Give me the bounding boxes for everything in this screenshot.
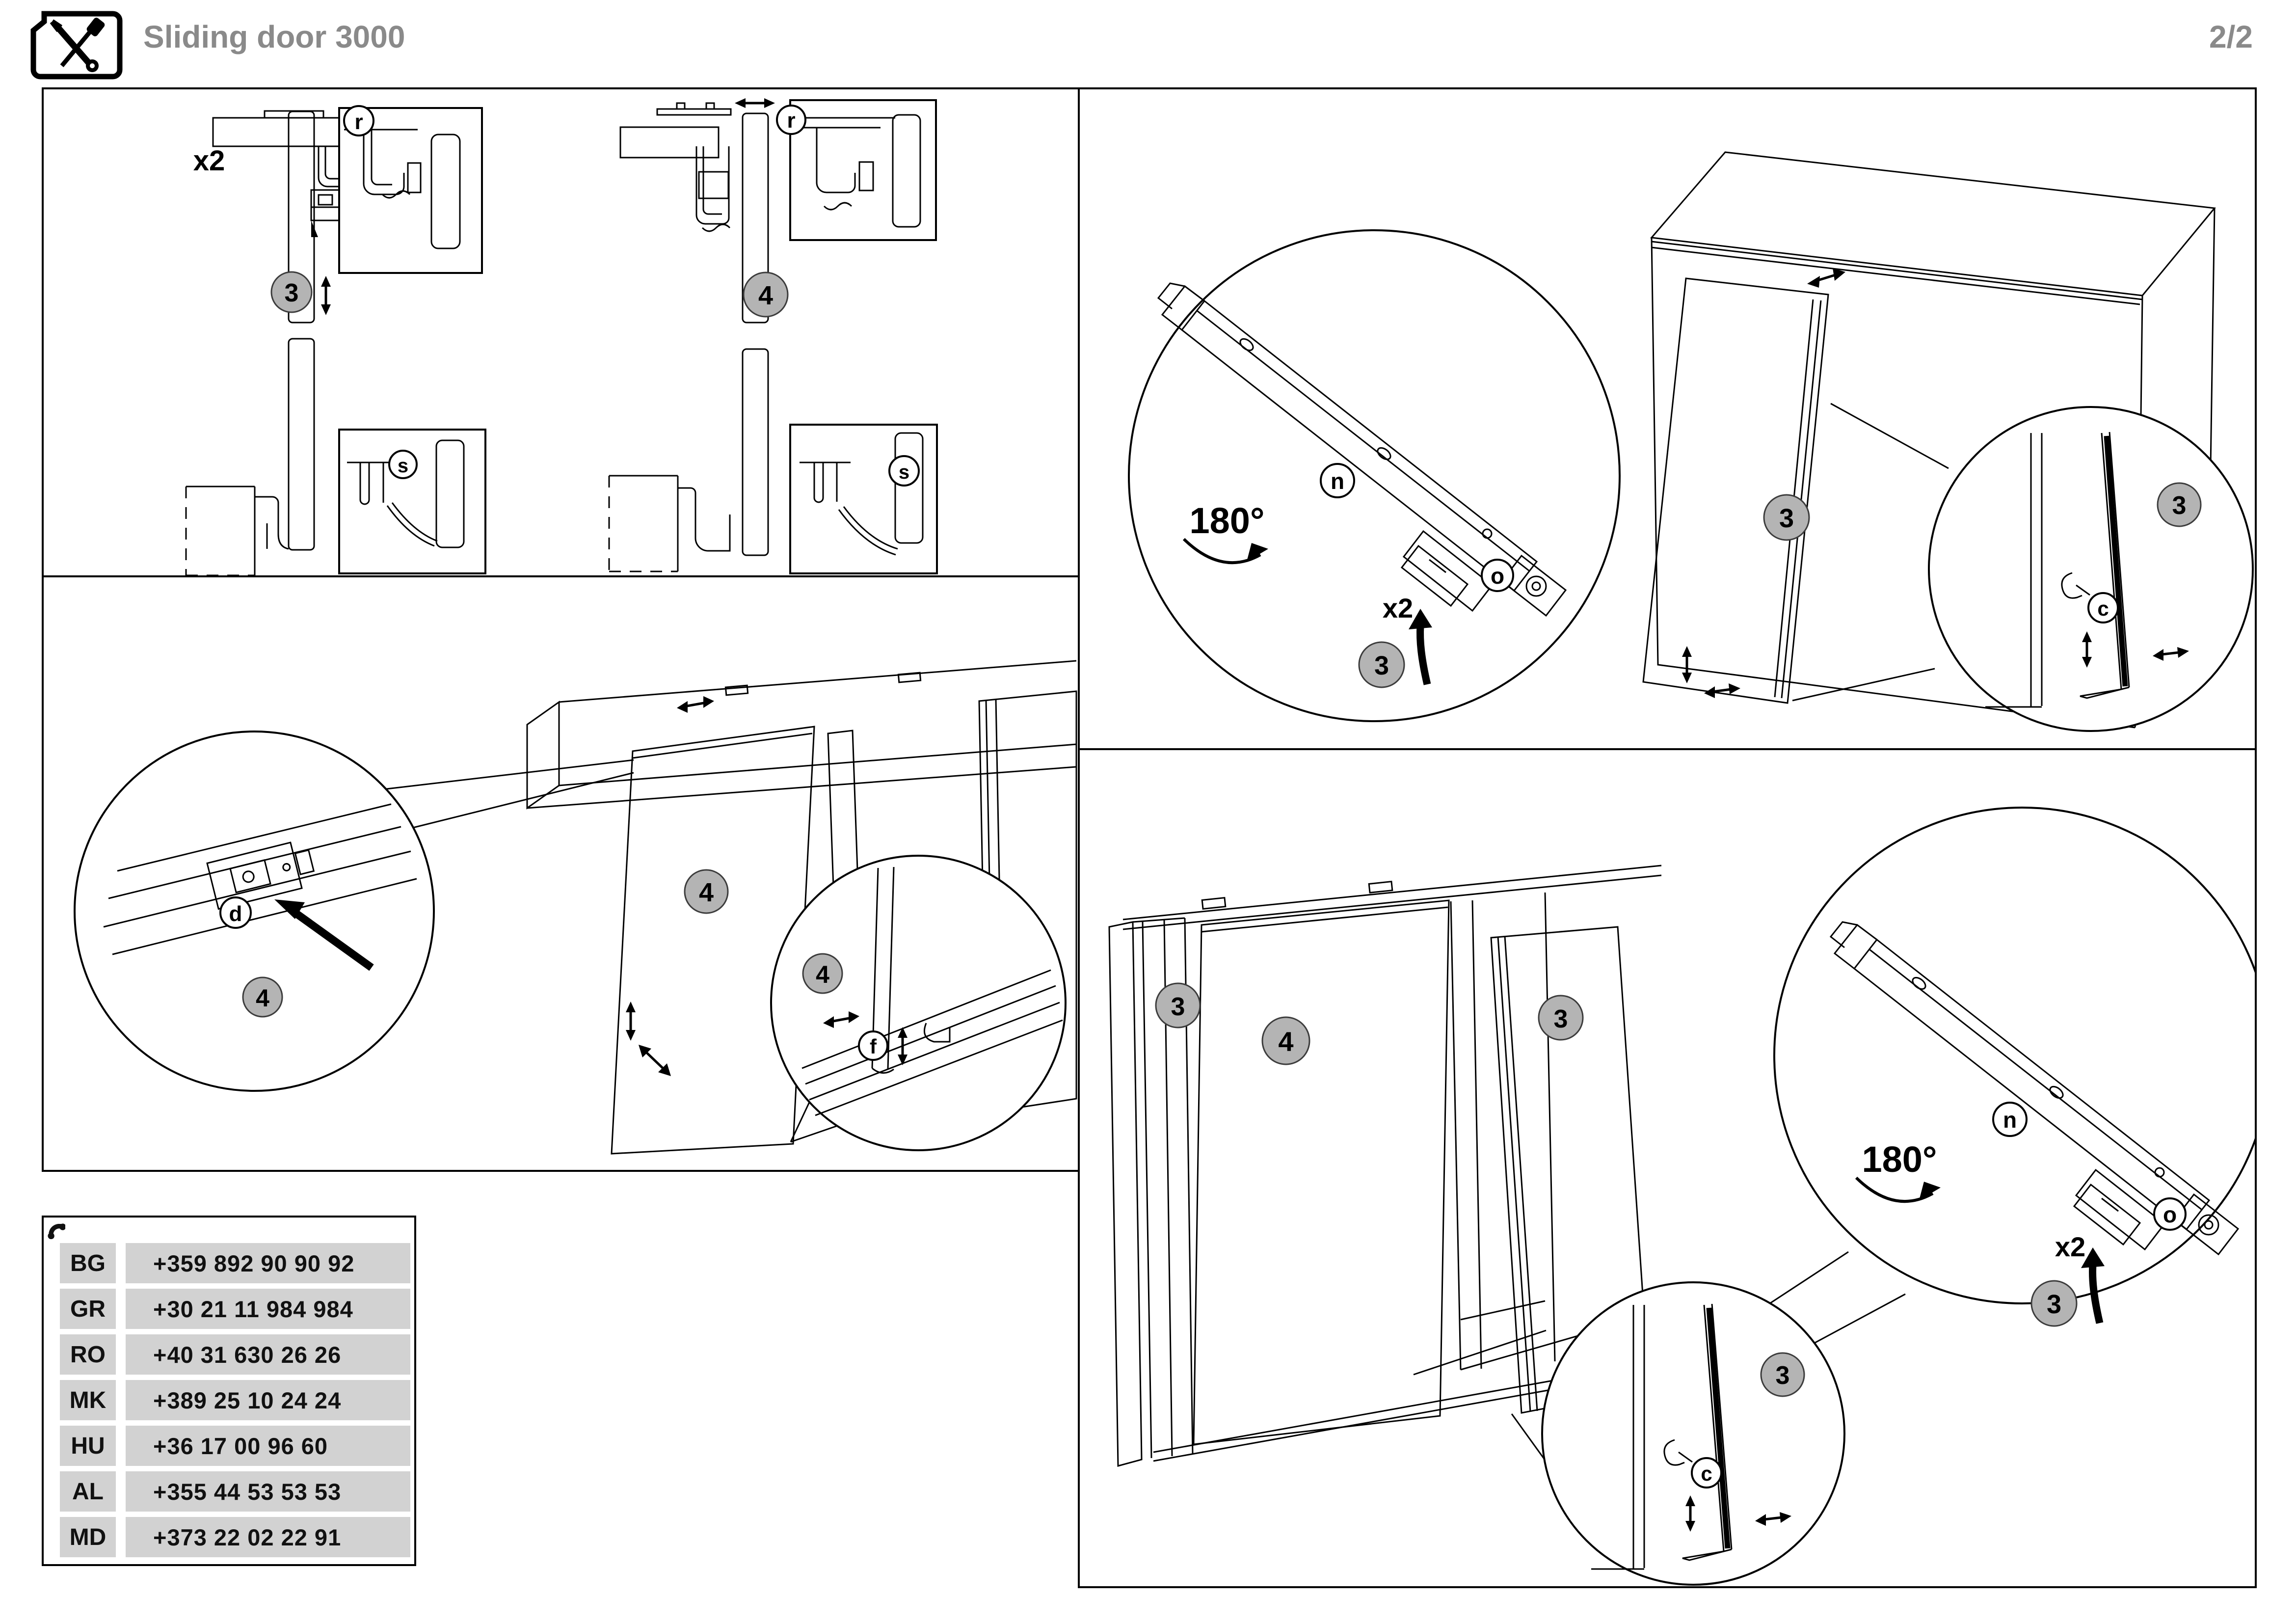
svg-text:n: n [1331, 468, 1344, 494]
page-root: { "header": { "title": "Sliding door 300… [0, 0, 2296, 1624]
phone-number: +36 17 00 96 60 [153, 1433, 328, 1460]
table-row: BG +359 892 90 90 92 [60, 1243, 414, 1283]
country-code: GR [60, 1289, 116, 1329]
svg-text:4: 4 [816, 961, 829, 988]
phone-number: +373 22 02 22 91 [153, 1524, 341, 1551]
rotation-label: 180° [1862, 1139, 1937, 1180]
step-circle-3: 3 [271, 272, 312, 312]
phone-number-cell: +359 892 90 90 92 [126, 1243, 410, 1283]
table-row: RO +40 31 630 26 26 [60, 1334, 414, 1375]
svg-text:4: 4 [1278, 1026, 1293, 1057]
phone-number-cell: +40 31 630 26 26 [126, 1334, 410, 1375]
zoom-bubble-c: 3 c [1512, 1282, 1844, 1585]
svg-text:f: f [870, 1035, 877, 1058]
detail-box-r: r [339, 106, 482, 273]
svg-text:c: c [2097, 597, 2109, 620]
svg-text:4: 4 [758, 281, 773, 310]
assembly-manual-icon [29, 11, 124, 82]
zoom-bubble-c: 3 c [1792, 404, 2253, 731]
country-code: AL [60, 1471, 116, 1512]
zoom-bubble-d: d 4 [75, 731, 634, 1091]
svg-text:r: r [354, 110, 363, 134]
step-circle-3: 3 [1156, 983, 1200, 1028]
svg-text:3: 3 [1171, 993, 1185, 1021]
multiplier-label: x2 [1383, 593, 1413, 623]
phone-number-cell: +373 22 02 22 91 [126, 1517, 410, 1557]
step-circle-4: 4 [803, 954, 842, 993]
multiplier-label: x2 [2055, 1231, 2085, 1262]
table-row: GR +30 21 11 984 984 [60, 1289, 414, 1329]
svg-text:s: s [899, 461, 909, 483]
svg-text:3: 3 [1554, 1005, 1568, 1033]
svg-text:3: 3 [1374, 651, 1389, 680]
step-circle-3: 3 [2031, 1281, 2077, 1326]
svg-text:c: c [1701, 1462, 1712, 1485]
phone-number: +389 25 10 24 24 [153, 1387, 341, 1414]
table-row: AL +355 44 53 53 53 [60, 1471, 414, 1512]
panel-hang-door-3: 180° x2 n o 3 [1078, 87, 2257, 750]
step-circle-3: 3 [1539, 996, 1583, 1040]
panel-cross-sections: x2 3 r s [42, 87, 1080, 577]
step-circle-3: 3 [2158, 483, 2201, 526]
svg-text:s: s [398, 455, 408, 477]
support-phone-table: BG +359 892 90 90 92 GR +30 21 11 984 98… [42, 1216, 416, 1566]
panel-door-mount: 4 d 4 [42, 575, 1080, 1172]
phone-number-cell: +355 44 53 53 53 [126, 1471, 410, 1512]
page-title: Sliding door 3000 [143, 19, 405, 55]
page-number: 2/2 [2209, 19, 2253, 55]
table-row: MD +373 22 02 22 91 [60, 1517, 414, 1557]
horizontal-adjust-arrow [735, 98, 775, 108]
phone-number-cell: +389 25 10 24 24 [126, 1380, 410, 1420]
step-circle-3: 3 [1764, 495, 1809, 540]
country-code: MD [60, 1517, 116, 1557]
country-code: MK [60, 1380, 116, 1420]
table-row: HU +36 17 00 96 60 [60, 1426, 414, 1466]
door-adjust-arrows [1682, 268, 1845, 698]
panel-hang-remaining-doors: 3 4 3 180° x [1078, 748, 2257, 1588]
svg-text:3: 3 [1779, 504, 1794, 533]
country-code: BG [60, 1243, 116, 1283]
svg-text:4: 4 [699, 878, 714, 907]
zoom-bubble-f: 4 f [771, 856, 1066, 1150]
svg-text:r: r [787, 108, 795, 133]
section-top-rail-step4 [609, 103, 768, 571]
svg-text:d: d [229, 902, 242, 926]
svg-text:o: o [2163, 1202, 2177, 1227]
table-row: MK +389 25 10 24 24 [60, 1380, 414, 1420]
country-code: HU [60, 1426, 116, 1466]
rotation-label: 180° [1189, 500, 1264, 541]
detail-box-s: s [339, 430, 485, 573]
phone-number-cell: +36 17 00 96 60 [126, 1426, 410, 1466]
step-circle-4: 4 [1262, 1017, 1309, 1064]
section-top-rail-step3 [186, 111, 356, 575]
phone-number: +355 44 53 53 53 [153, 1478, 341, 1505]
svg-text:4: 4 [256, 984, 269, 1012]
step-circle-3: 3 [1359, 642, 1404, 687]
step-circle-4: 4 [744, 272, 788, 317]
svg-text:3: 3 [1776, 1361, 1790, 1390]
phone-number: +30 21 11 984 984 [153, 1296, 353, 1323]
detail-box-s2: s [790, 425, 937, 573]
phone-icon [44, 1218, 65, 1239]
svg-text:n: n [2003, 1107, 2017, 1133]
phone-number: +40 31 630 26 26 [153, 1341, 341, 1368]
zoom-bubble-rail: 180° x2 n o 3 [1129, 230, 1620, 721]
step-circle-4: 4 [685, 870, 728, 913]
svg-text:3: 3 [2047, 1290, 2061, 1319]
vertical-adjust-arrow [321, 276, 331, 315]
multiplier-label: x2 [193, 145, 225, 177]
svg-text:3: 3 [285, 279, 299, 307]
step-circle-3: 3 [1761, 1353, 1804, 1396]
svg-text:3: 3 [2172, 491, 2187, 520]
phone-number: +359 892 90 90 92 [153, 1250, 354, 1277]
detail-box-r2: r [777, 100, 936, 240]
svg-text:o: o [1491, 563, 1504, 589]
phone-number-cell: +30 21 11 984 984 [126, 1289, 410, 1329]
country-code: RO [60, 1334, 116, 1375]
step-circle-4: 4 [243, 977, 282, 1017]
